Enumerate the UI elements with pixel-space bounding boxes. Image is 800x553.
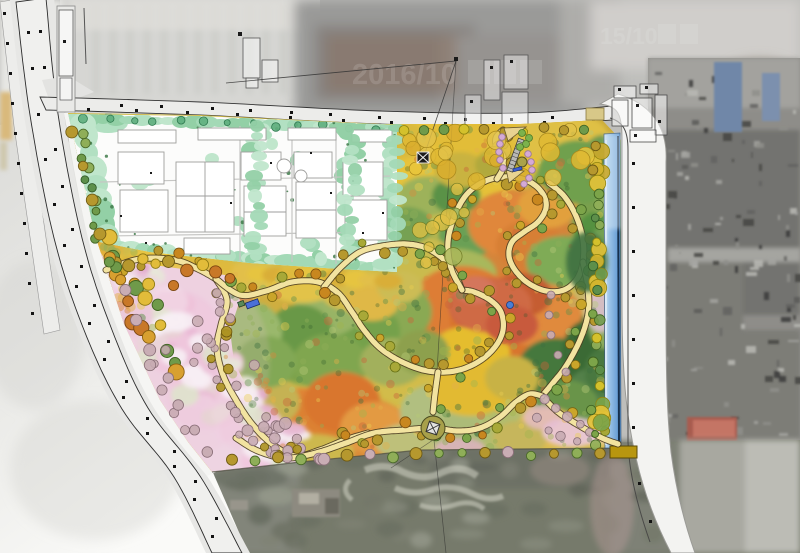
svg-text:15/10: 15/10 bbox=[600, 23, 658, 49]
svg-text:2016/10: 2016/10 bbox=[352, 59, 457, 91]
